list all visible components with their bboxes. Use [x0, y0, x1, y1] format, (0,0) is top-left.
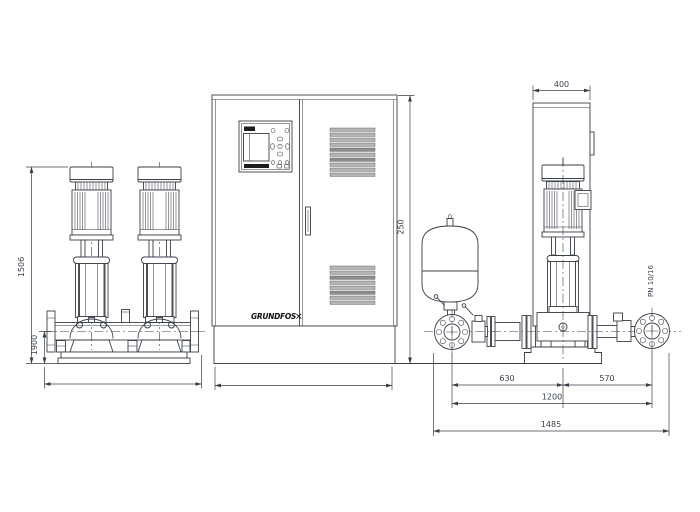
manifold-port	[122, 310, 130, 323]
dim-cabinet-width-front	[215, 367, 392, 391]
dim-label-1900: 1900	[30, 335, 39, 355]
dim-label-1506: 1506	[17, 257, 26, 277]
dim-cabinet-250: 250	[397, 96, 415, 364]
dim-1485: 1485	[434, 420, 670, 431]
panel-logo-bar	[244, 164, 269, 168]
pump-unit-2	[138, 162, 181, 352]
pipe-brackets	[57, 341, 191, 353]
logo-text: GRUNDFOS	[251, 312, 296, 321]
svg-text:1200: 1200	[542, 393, 562, 402]
dim-cabinet-depth-400: 400	[533, 80, 590, 100]
diaphragm-tank	[422, 215, 478, 317]
panel-display	[244, 134, 270, 162]
side-view: 400	[422, 80, 681, 436]
control-cabinet-front: GRUNDFOS ✕ 250	[212, 95, 415, 390]
pump-system-dimensional-drawing: 1506 1900	[0, 0, 700, 512]
grundfos-logo: GRUNDFOS ✕	[251, 312, 303, 323]
logo-x-mark-icon: ✕	[295, 313, 303, 323]
door-handle[interactable]	[306, 207, 311, 235]
svg-text:570: 570	[599, 374, 614, 383]
technical-drawing-page: 1506 1900	[0, 0, 700, 512]
cabinet-plinth	[214, 326, 395, 364]
side-door-handle	[590, 132, 594, 155]
panel-brand-strip	[244, 127, 255, 132]
base-frame	[58, 352, 190, 364]
pump-unit-1	[70, 162, 113, 352]
dim-label-400: 400	[554, 80, 569, 89]
dim-label-250: 250	[397, 219, 406, 234]
svg-text:630: 630	[499, 374, 514, 383]
dim-front-total-height: 1506	[17, 167, 68, 364]
flange-rating-label: PN 10/16	[647, 265, 655, 297]
control-panel	[239, 121, 292, 172]
dim-570: 570	[563, 374, 652, 385]
dim-630: 630	[452, 374, 563, 385]
svg-text:1485: 1485	[541, 420, 561, 429]
pump-front-view: 1506 1900	[17, 162, 207, 389]
dim-1200: 1200	[452, 393, 652, 404]
